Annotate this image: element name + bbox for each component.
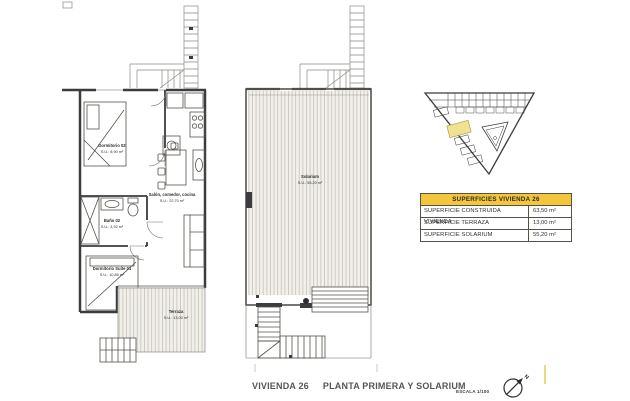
scale-label: ESCALA 1/100 — [456, 389, 489, 394]
room-label-terraza: Terraza — [169, 309, 184, 314]
floor-plan-first-floor: Dormitorio 02 S.U.: 8,90 m² Baño 02 S.U.… — [62, 2, 206, 362]
north-label: N — [523, 374, 530, 381]
sofa — [184, 215, 204, 267]
surfaces-table-header: SUPERFICIES VIVIENDA 26 — [421, 194, 571, 206]
table-row: SUPERFICIE SOLARIUM 55,20 m² — [421, 230, 571, 241]
room-label-salon: Salón, comedor, cocina — [149, 192, 196, 197]
sheet-title-plan: PLANTA PRIMERA Y SOLARIUM — [323, 381, 466, 391]
drawing-sheet: Dormitorio 02 S.U.: 8,90 m² Baño 02 S.U.… — [0, 0, 630, 401]
room-area-solarium: S.U.: 55,20 m² — [298, 181, 323, 185]
surface-label: SUPERFICIE SOLARIUM — [421, 230, 528, 241]
table-row: SUPERFICIE CONSTRUIDA VIVIENDA 63,50 m² — [421, 206, 571, 218]
bed-dormitorio-02 — [84, 102, 126, 166]
outdoor-shower-dot — [303, 298, 309, 304]
room-label-suite-01: Dormitorio Suite 01 — [93, 266, 132, 271]
sheet-title-unit: VIVIENDA 26 — [252, 381, 309, 391]
north-compass: N — [504, 365, 545, 397]
site-plan-triangle — [425, 93, 534, 174]
room-area-salon: S.U.: 22,70 m² — [160, 199, 185, 203]
room-label-solarium: Solarium — [301, 174, 319, 179]
table-row: SUPERFICIE TERRAZA 13,00 m² — [421, 218, 571, 230]
solarium-deck — [248, 91, 369, 295]
terrace-stairs — [100, 338, 136, 362]
room-area-bano-02: S.U.: 3,92 m² — [101, 225, 124, 229]
pergola-bench — [312, 287, 368, 312]
room-label-dormitorio-02: Dormitorio 02 — [98, 143, 126, 148]
surface-label: SUPERFICIE CONSTRUIDA VIVIENDA — [421, 206, 528, 217]
sheet-title: VIVIENDA 26 PLANTA PRIMERA Y SOLARIUM — [252, 381, 466, 391]
kitchen-fixtures — [163, 93, 205, 180]
room-label-bano-02: Baño 02 — [104, 218, 121, 223]
surface-value: 55,20 m² — [528, 230, 571, 241]
surface-label: SUPERFICIE TERRAZA — [421, 218, 528, 229]
solarium-plan: Solarium S.U.: 55,20 m² — [246, 6, 377, 372]
surfaces-table: SUPERFICIES VIVIENDA 26 SUPERFICIE CONST… — [420, 193, 572, 242]
surface-value: 63,50 m² — [528, 206, 571, 217]
room-area-dormitorio-02: S.U.: 8,90 m² — [101, 150, 124, 154]
dining-table — [158, 143, 186, 189]
surface-value: 13,00 m² — [528, 218, 571, 229]
room-area-terraza: S.U.: 13,00 m² — [164, 316, 189, 320]
room-area-suite-01: S.U.: 10,85 m² — [100, 273, 125, 277]
